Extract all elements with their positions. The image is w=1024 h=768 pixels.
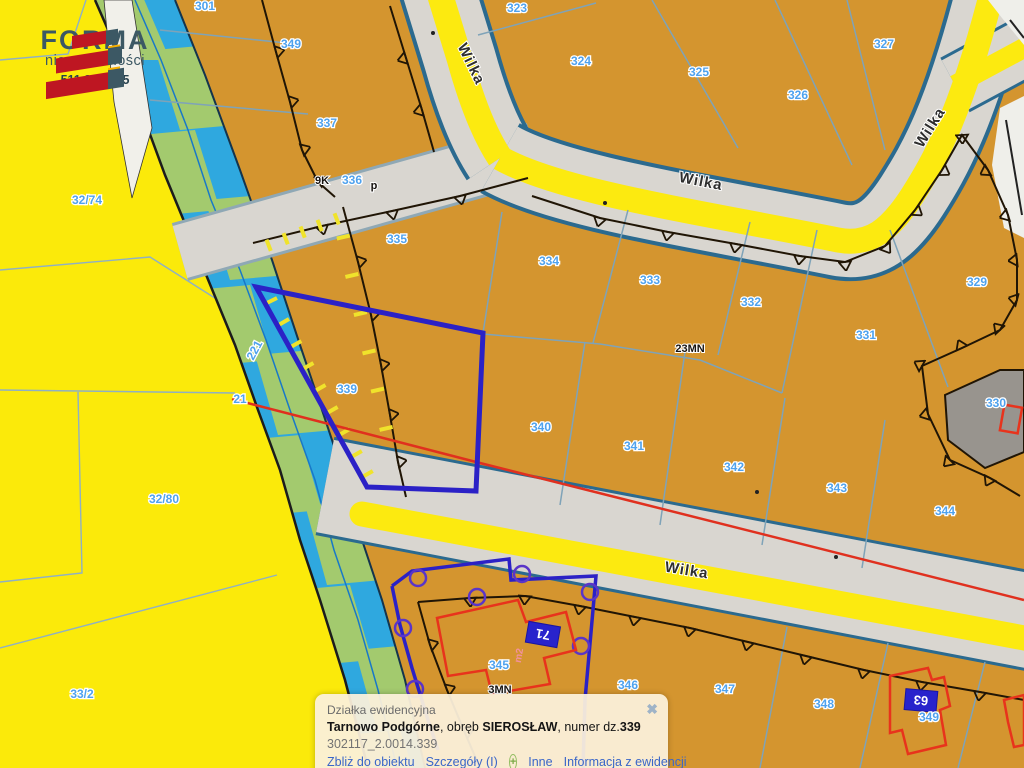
popup-parcel-number: 339 xyxy=(620,720,641,734)
popup-parcel-id: 302117_2.0014.339 xyxy=(327,737,656,751)
parcel-number-label: 349 xyxy=(281,37,301,51)
parcel-number-label: 301 xyxy=(195,0,215,13)
parcel-number-label: 329 xyxy=(967,275,987,289)
house-number-71-text: 71 xyxy=(534,626,551,643)
popup-number-label: , numer dz. xyxy=(557,720,620,734)
parcel-number-label: 345 xyxy=(489,658,509,672)
parcel-number-label: 335 xyxy=(387,232,407,246)
parcel-number-label: 336 xyxy=(342,173,362,187)
parcel-number-label: 32/74 xyxy=(72,193,102,207)
info-from-registry-link[interactable]: Informacja z ewidencji xyxy=(564,755,687,768)
popup-obreb-label: , obręb xyxy=(440,720,482,734)
parcel-number-label: 342 xyxy=(724,460,744,474)
parcel-number-label: 330 xyxy=(986,396,1006,410)
details-link[interactable]: Szczegóły (I) xyxy=(426,755,498,768)
zone-label: 9K xyxy=(315,175,329,187)
parcel-info-popup: ✖ Działka ewidencyjna Tarnowo Podgórne, … xyxy=(315,694,668,768)
zone-label: 23MN xyxy=(675,343,704,355)
parcel-number-label: 331 xyxy=(856,328,876,342)
map-application: 71 63 m2 WilkaWilkaWilkaWilka 23MN3MN9Kp… xyxy=(0,0,1024,768)
parcel-number-label: 21 xyxy=(233,392,247,406)
parcel-number-label: 326 xyxy=(788,88,808,102)
house-number-63-text: 63 xyxy=(913,692,929,708)
close-icon[interactable]: ✖ xyxy=(646,701,658,718)
parcel-number-label: 33/2 xyxy=(70,687,94,701)
zone-label: p xyxy=(371,180,378,192)
parcel-number-label: 340 xyxy=(531,420,551,434)
parcel-number-label: 347 xyxy=(715,682,735,696)
parcel-number-label: 332 xyxy=(741,295,761,309)
parcel-number-label: 333 xyxy=(640,273,660,287)
map-canvas[interactable]: 71 63 m2 WilkaWilkaWilkaWilka 23MN3MN9Kp… xyxy=(0,0,1024,768)
parcel-number-label: 346 xyxy=(618,678,638,692)
company-logo: FORMA nieruchomości 511 893 075 xyxy=(30,26,160,87)
parcel-number-label: 327 xyxy=(874,37,894,51)
popup-municipality: Tarnowo Podgórne xyxy=(327,720,440,734)
parcel-number-label: 344 xyxy=(935,504,955,518)
parcel-number-label: 323 xyxy=(507,1,527,15)
parcel-number-label: 339 xyxy=(337,382,357,396)
zoom-to-object-link[interactable]: Zbliż do obiektu xyxy=(327,755,415,768)
parcel-number-label: 349 xyxy=(919,710,939,724)
popup-obreb: SIEROSŁAW xyxy=(482,720,557,734)
parcel-number-label: 341 xyxy=(624,439,644,453)
parcel-number-label: 348 xyxy=(814,697,834,711)
popup-parcel-title: Tarnowo Podgórne, obręb SIEROSŁAW, numer… xyxy=(327,720,656,734)
popup-actions: Zbliż do obiektu Szczegóły (I) + Inne In… xyxy=(327,754,656,768)
parcel-number-label: 324 xyxy=(571,54,591,68)
parcel-number-label: 32/80 xyxy=(149,492,179,506)
parcel-number-label: 325 xyxy=(689,65,709,79)
parcel-number-label: 334 xyxy=(539,254,559,268)
plus-circle-icon[interactable]: + xyxy=(509,754,517,768)
parcel-number-label: 343 xyxy=(827,481,847,495)
house-number-63: 63 xyxy=(904,689,938,713)
parcel-number-label: 337 xyxy=(317,116,337,130)
popup-type-label: Działka ewidencyjna xyxy=(327,703,656,717)
other-link[interactable]: Inne xyxy=(528,755,552,768)
logo-building-icon xyxy=(30,26,160,104)
